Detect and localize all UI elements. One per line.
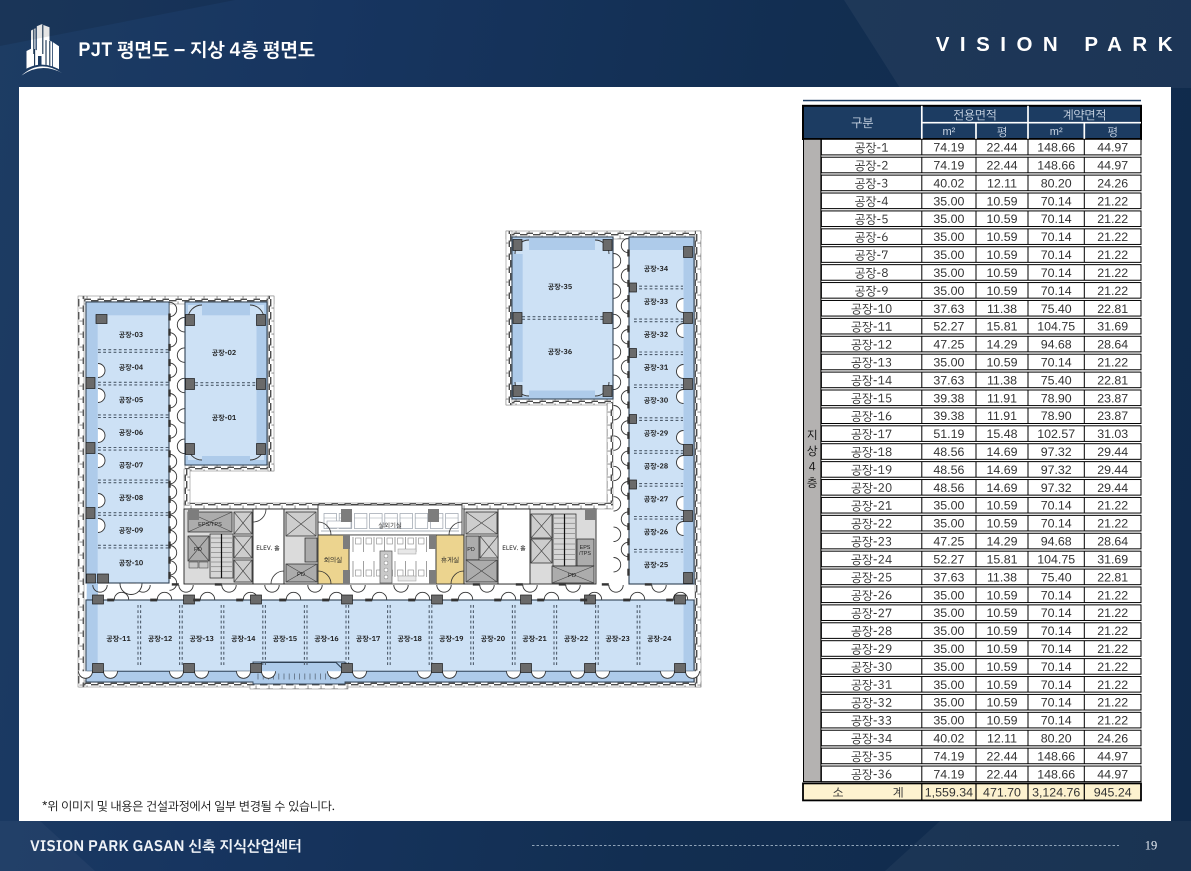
svg-text:70.14: 70.14: [1041, 194, 1072, 208]
svg-text:/TPS: /TPS: [579, 551, 591, 557]
svg-text:70.14: 70.14: [1041, 212, 1072, 226]
svg-text:70.14: 70.14: [1041, 660, 1072, 674]
svg-text:70.14: 70.14: [1041, 642, 1072, 656]
svg-text:21.22: 21.22: [1097, 624, 1128, 638]
svg-text:37.63: 37.63: [933, 373, 964, 387]
svg-text:10.59: 10.59: [986, 588, 1017, 602]
svg-text:21.22: 21.22: [1097, 696, 1128, 710]
svg-text:22.44: 22.44: [986, 159, 1017, 173]
svg-text:21.22: 21.22: [1097, 499, 1128, 513]
svg-text:75.40: 75.40: [1041, 302, 1072, 316]
svg-text:EPS/TPS: EPS/TPS: [198, 522, 222, 528]
svg-text:70.14: 70.14: [1041, 499, 1072, 513]
svg-text:14.69: 14.69: [986, 445, 1017, 459]
svg-text:35.00: 35.00: [933, 266, 964, 280]
svg-text:10.59: 10.59: [986, 606, 1017, 620]
svg-text:148.66: 148.66: [1037, 749, 1075, 763]
svg-text:m²: m²: [1050, 126, 1063, 138]
svg-text:21.22: 21.22: [1097, 194, 1128, 208]
svg-text:10.59: 10.59: [986, 266, 1017, 280]
svg-text:PD: PD: [568, 573, 576, 579]
svg-text:48.56: 48.56: [933, 445, 964, 459]
svg-text:97.32: 97.32: [1041, 481, 1072, 495]
svg-text:35.00: 35.00: [933, 714, 964, 728]
svg-text:10.59: 10.59: [986, 517, 1017, 531]
svg-text:29.44: 29.44: [1097, 445, 1128, 459]
svg-text:48.56: 48.56: [933, 463, 964, 477]
svg-text:80.20: 80.20: [1041, 176, 1072, 190]
svg-text:70.14: 70.14: [1041, 517, 1072, 531]
svg-text:35.00: 35.00: [933, 517, 964, 531]
svg-text:39.38: 39.38: [933, 409, 964, 423]
svg-text:97.32: 97.32: [1041, 445, 1072, 459]
svg-text:70.14: 70.14: [1041, 356, 1072, 370]
svg-text:3,124.76: 3,124.76: [1032, 785, 1080, 799]
svg-text:31.69: 31.69: [1097, 553, 1128, 567]
svg-text:10.59: 10.59: [986, 284, 1017, 298]
svg-text:VISION PARK: VISION PARK: [936, 33, 1183, 56]
svg-text:24.26: 24.26: [1097, 732, 1128, 746]
svg-text:21.22: 21.22: [1097, 606, 1128, 620]
svg-text:94.68: 94.68: [1041, 338, 1072, 352]
svg-text:74.19: 74.19: [933, 159, 964, 173]
svg-text:21.22: 21.22: [1097, 588, 1128, 602]
svg-text:10.59: 10.59: [986, 678, 1017, 692]
svg-text:70.14: 70.14: [1041, 606, 1072, 620]
svg-text:14.29: 14.29: [986, 338, 1017, 352]
svg-text:70.14: 70.14: [1041, 678, 1072, 692]
svg-text:21.22: 21.22: [1097, 660, 1128, 674]
svg-text:21.22: 21.22: [1097, 212, 1128, 226]
svg-text:15.81: 15.81: [986, 320, 1017, 334]
svg-text:74.19: 74.19: [933, 141, 964, 155]
svg-text:10.59: 10.59: [986, 212, 1017, 226]
svg-text:78.90: 78.90: [1041, 391, 1072, 405]
svg-text:10.59: 10.59: [986, 660, 1017, 674]
svg-text:70.14: 70.14: [1041, 588, 1072, 602]
svg-text:m²: m²: [942, 126, 955, 138]
svg-text:23.87: 23.87: [1097, 409, 1128, 423]
svg-text:75.40: 75.40: [1041, 570, 1072, 584]
svg-text:70.14: 70.14: [1041, 284, 1072, 298]
svg-text:47.25: 47.25: [933, 535, 964, 549]
svg-text:24.26: 24.26: [1097, 176, 1128, 190]
svg-text:40.02: 40.02: [933, 176, 964, 190]
svg-text:22.81: 22.81: [1097, 570, 1128, 584]
svg-text:10.59: 10.59: [986, 230, 1017, 244]
svg-text:10.59: 10.59: [986, 624, 1017, 638]
svg-text:11.91: 11.91: [987, 409, 1017, 423]
svg-text:44.97: 44.97: [1097, 767, 1128, 781]
svg-text:945.24: 945.24: [1094, 785, 1132, 799]
svg-text:70.14: 70.14: [1041, 248, 1072, 262]
svg-text:21.22: 21.22: [1097, 230, 1128, 244]
svg-text:35.00: 35.00: [933, 248, 964, 262]
svg-text:35.00: 35.00: [933, 230, 964, 244]
svg-text:10.59: 10.59: [986, 714, 1017, 728]
svg-text:35.00: 35.00: [933, 284, 964, 298]
svg-text:39.38: 39.38: [933, 391, 964, 405]
svg-text:10.59: 10.59: [986, 499, 1017, 513]
svg-text:35.00: 35.00: [933, 642, 964, 656]
svg-text:35.00: 35.00: [933, 588, 964, 602]
svg-text:37.63: 37.63: [933, 302, 964, 316]
svg-text:21.22: 21.22: [1097, 517, 1128, 531]
svg-text:19: 19: [1145, 839, 1158, 853]
svg-text:12.11: 12.11: [987, 176, 1017, 190]
svg-text:74.19: 74.19: [933, 767, 964, 781]
svg-text:PD: PD: [297, 572, 305, 578]
svg-text:29.44: 29.44: [1097, 481, 1128, 495]
svg-text:14.69: 14.69: [986, 481, 1017, 495]
svg-text:51.19: 51.19: [933, 427, 964, 441]
svg-text:35.00: 35.00: [933, 624, 964, 638]
svg-text:47.25: 47.25: [933, 338, 964, 352]
svg-text:35.00: 35.00: [933, 499, 964, 513]
svg-text:94.68: 94.68: [1041, 535, 1072, 549]
svg-text:35.00: 35.00: [933, 356, 964, 370]
svg-text:35.00: 35.00: [933, 660, 964, 674]
svg-text:37.63: 37.63: [933, 570, 964, 584]
svg-text:28.64: 28.64: [1097, 338, 1128, 352]
svg-text:104.75: 104.75: [1037, 553, 1075, 567]
svg-text:70.14: 70.14: [1041, 714, 1072, 728]
svg-text:70.14: 70.14: [1041, 696, 1072, 710]
svg-text:21.22: 21.22: [1097, 356, 1128, 370]
svg-text:23.87: 23.87: [1097, 391, 1128, 405]
svg-text:148.66: 148.66: [1037, 767, 1075, 781]
svg-text:148.66: 148.66: [1037, 141, 1075, 155]
svg-text:21.22: 21.22: [1097, 642, 1128, 656]
svg-text:75.40: 75.40: [1041, 373, 1072, 387]
svg-text:10.59: 10.59: [986, 696, 1017, 710]
svg-text:80.20: 80.20: [1041, 732, 1072, 746]
svg-text:11.38: 11.38: [987, 570, 1017, 584]
svg-text:31.69: 31.69: [1097, 320, 1128, 334]
svg-text:102.57: 102.57: [1037, 427, 1075, 441]
svg-text:70.14: 70.14: [1041, 266, 1072, 280]
svg-text:104.75: 104.75: [1037, 320, 1075, 334]
svg-text:31.03: 31.03: [1097, 427, 1128, 441]
svg-text:10.59: 10.59: [986, 194, 1017, 208]
svg-text:1,559.34: 1,559.34: [925, 785, 973, 799]
svg-text:97.32: 97.32: [1041, 463, 1072, 477]
svg-text:22.81: 22.81: [1097, 302, 1128, 316]
svg-text:35.00: 35.00: [933, 194, 964, 208]
svg-text:35.00: 35.00: [933, 606, 964, 620]
svg-text:15.81: 15.81: [986, 553, 1017, 567]
svg-text:44.97: 44.97: [1097, 749, 1128, 763]
svg-text:11.38: 11.38: [987, 373, 1017, 387]
svg-text:74.19: 74.19: [933, 749, 964, 763]
svg-text:78.90: 78.90: [1041, 409, 1072, 423]
svg-text:35.00: 35.00: [933, 696, 964, 710]
svg-text:48.56: 48.56: [933, 481, 964, 495]
svg-text:21.22: 21.22: [1097, 284, 1128, 298]
svg-text:14.29: 14.29: [986, 535, 1017, 549]
svg-text:148.66: 148.66: [1037, 159, 1075, 173]
svg-text:22.44: 22.44: [986, 141, 1017, 155]
svg-text:52.27: 52.27: [933, 553, 964, 567]
svg-text:70.14: 70.14: [1041, 230, 1072, 244]
svg-text:22.81: 22.81: [1097, 373, 1128, 387]
svg-text:21.22: 21.22: [1097, 248, 1128, 262]
svg-text:44.97: 44.97: [1097, 159, 1128, 173]
svg-text:44.97: 44.97: [1097, 141, 1128, 155]
svg-text:12.11: 12.11: [987, 732, 1017, 746]
svg-text:35.00: 35.00: [933, 212, 964, 226]
svg-text:10.59: 10.59: [986, 248, 1017, 262]
svg-text:21.22: 21.22: [1097, 266, 1128, 280]
svg-text:11.38: 11.38: [987, 302, 1017, 316]
svg-text:PD: PD: [194, 547, 202, 553]
svg-text:PD: PD: [467, 547, 475, 553]
svg-text:10.59: 10.59: [986, 356, 1017, 370]
svg-text:11.91: 11.91: [987, 391, 1017, 405]
svg-text:29.44: 29.44: [1097, 463, 1128, 477]
svg-text:22.44: 22.44: [986, 749, 1017, 763]
svg-text:10.59: 10.59: [986, 642, 1017, 656]
svg-text:21.22: 21.22: [1097, 714, 1128, 728]
svg-text:22.44: 22.44: [986, 767, 1017, 781]
svg-text:15.48: 15.48: [986, 427, 1017, 441]
svg-text:28.64: 28.64: [1097, 535, 1128, 549]
svg-text:35.00: 35.00: [933, 678, 964, 692]
svg-text:471.70: 471.70: [983, 785, 1021, 799]
svg-text:40.02: 40.02: [933, 732, 964, 746]
svg-text:21.22: 21.22: [1097, 678, 1128, 692]
svg-text:14.69: 14.69: [986, 463, 1017, 477]
svg-text:52.27: 52.27: [933, 320, 964, 334]
svg-text:70.14: 70.14: [1041, 624, 1072, 638]
